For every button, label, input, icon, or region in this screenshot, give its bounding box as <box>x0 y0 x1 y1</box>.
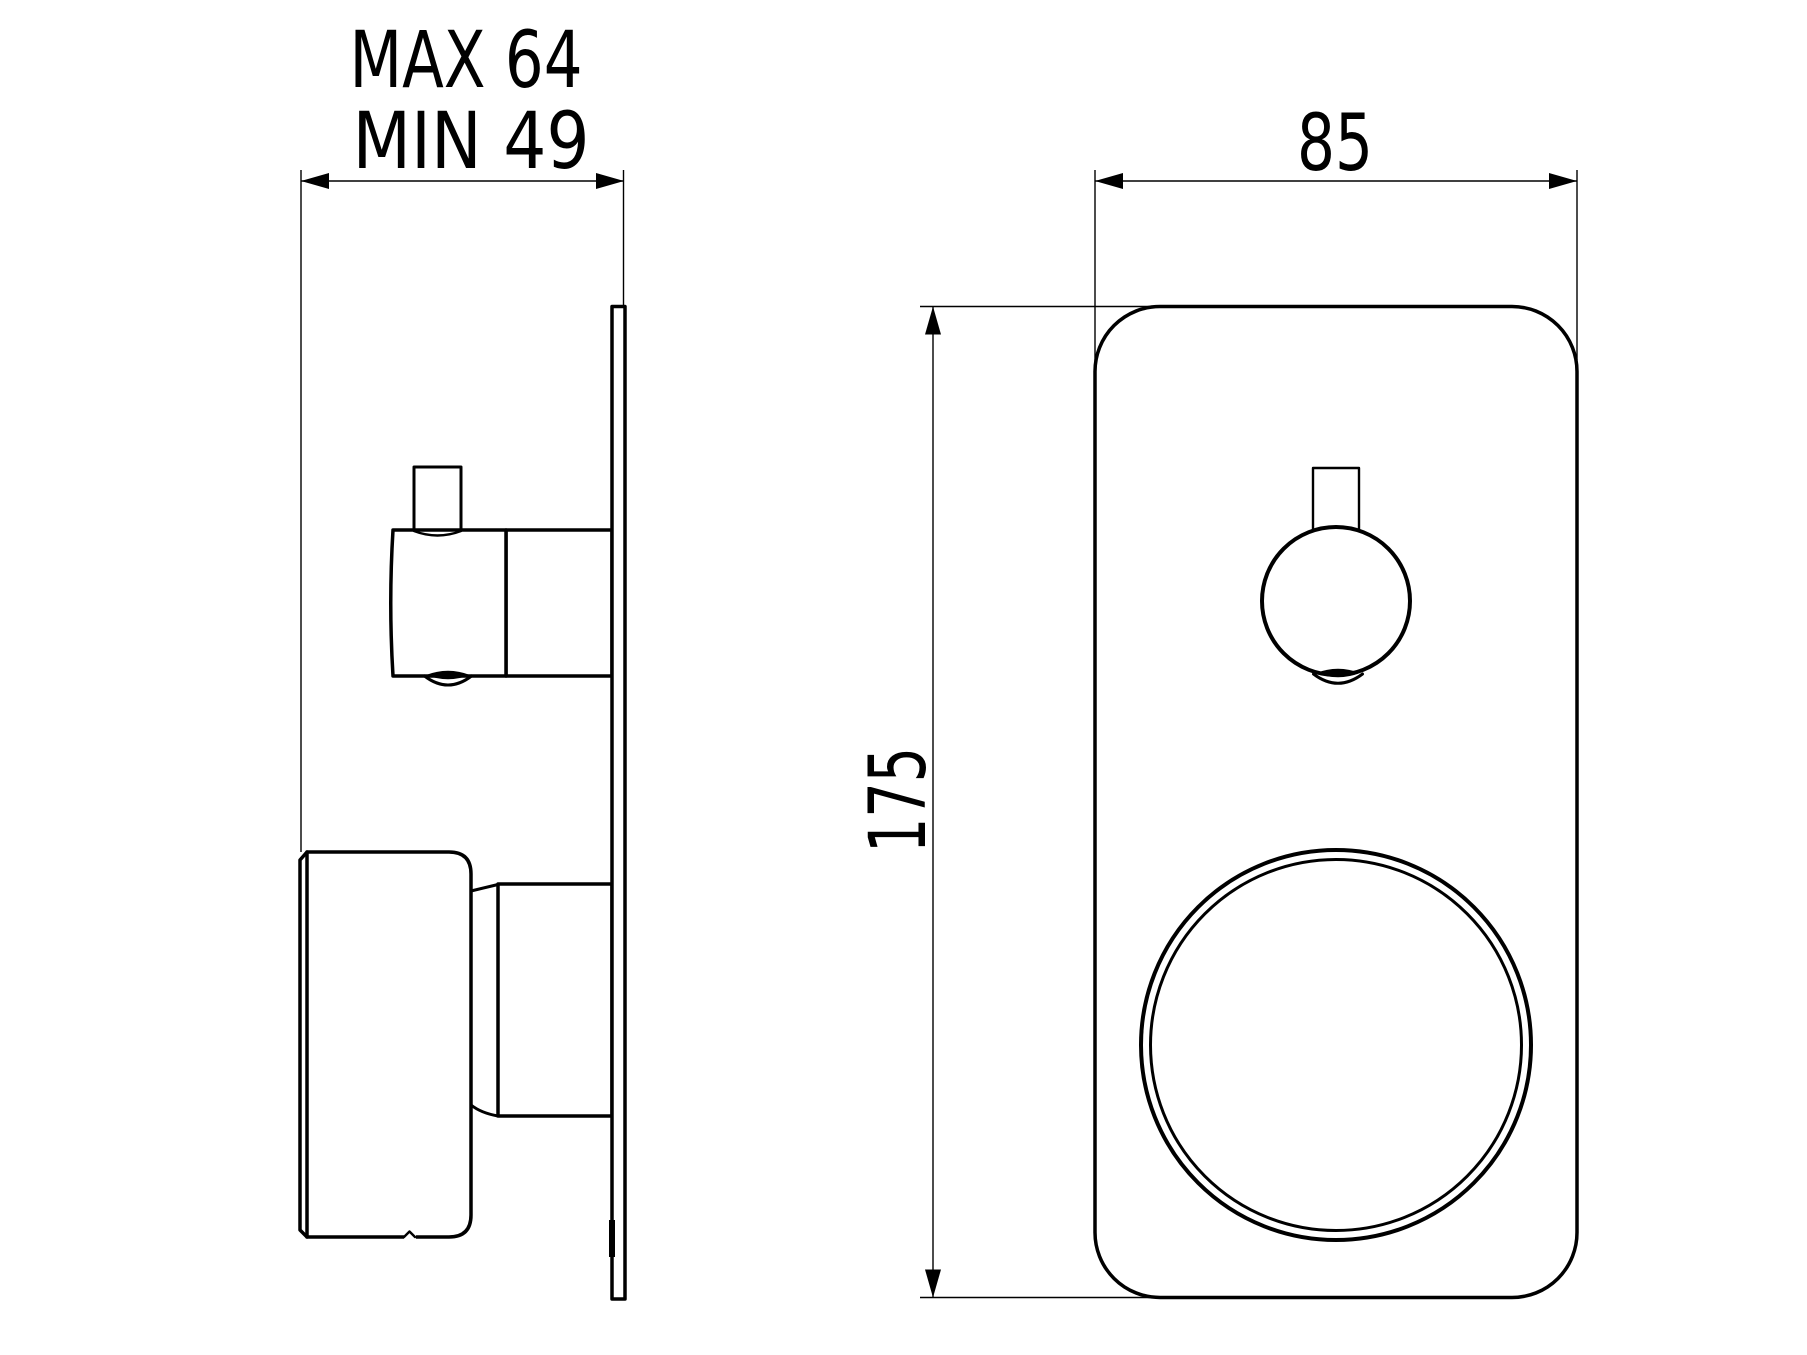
side-wall-plate <box>609 307 625 1300</box>
knob-outer-circle <box>1141 850 1531 1240</box>
dimension-arrow-right <box>596 173 624 189</box>
dimension-label-width: 85 <box>1297 99 1373 189</box>
dimension-label-height: 175 <box>854 747 944 853</box>
handle-knob-circle <box>1262 527 1410 675</box>
wall-plate-mark <box>609 1220 615 1257</box>
wall-plate-profile <box>612 307 625 1300</box>
side-view <box>300 307 625 1300</box>
technical-drawing: MAX 64 MIN 49 85 175 <box>0 0 1807 1355</box>
dimension-arrow-left <box>1095 173 1123 189</box>
handle-pin <box>414 467 461 530</box>
front-knob <box>1141 850 1531 1240</box>
dimension-arrow-bottom <box>925 1270 941 1298</box>
knob-sleeve-body <box>498 884 612 1116</box>
side-knob-sleeve <box>471 884 612 1116</box>
front-view <box>1095 307 1577 1298</box>
knob-sleeve-joint-top <box>471 885 498 892</box>
knob-profile <box>300 852 471 1237</box>
dimension-arrow-right <box>1549 173 1577 189</box>
side-knob <box>300 852 471 1241</box>
knob-sleeve-joint-bottom <box>471 1105 498 1116</box>
dimension-depth: MAX 64 MIN 49 <box>301 16 624 852</box>
drawing-canvas: MAX 64 MIN 49 85 175 <box>0 0 1807 1355</box>
handle-sleeve <box>506 530 612 676</box>
dimension-label-depth-min: MIN 49 <box>353 97 590 187</box>
handle-body <box>391 530 506 676</box>
dimension-label-depth-max: MAX 64 <box>350 16 583 106</box>
side-handle <box>391 467 612 685</box>
dimension-arrow-top <box>925 307 941 335</box>
dimension-arrow-left <box>301 173 329 189</box>
